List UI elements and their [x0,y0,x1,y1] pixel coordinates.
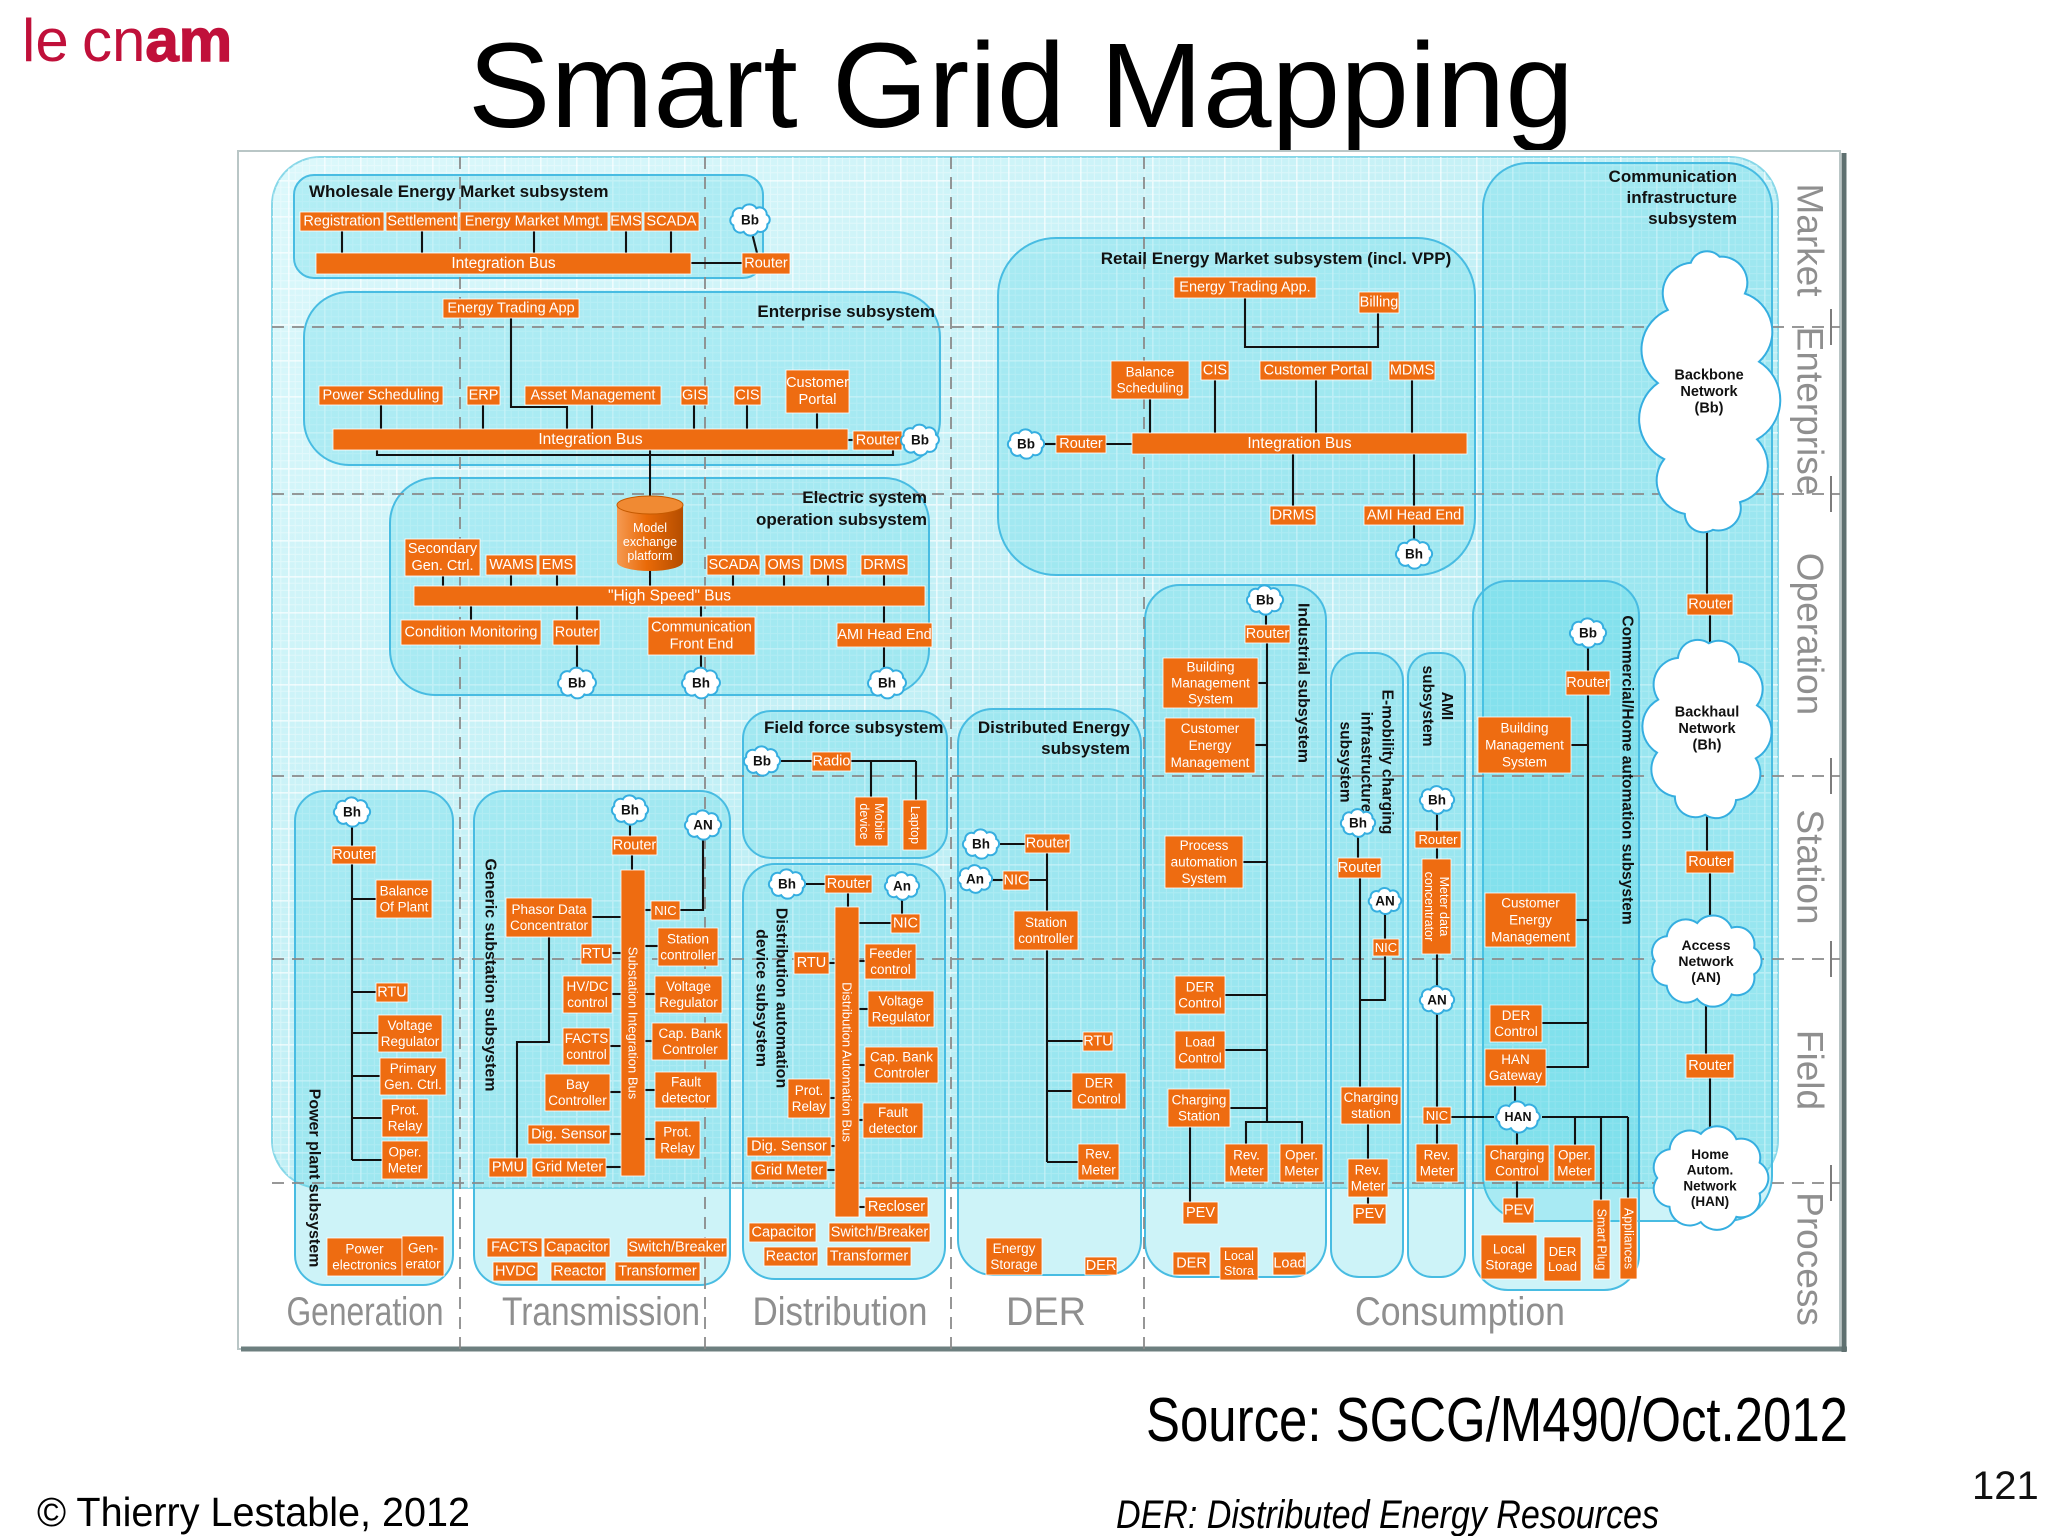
svg-text:Transformer: Transformer [618,1264,697,1280]
svg-text:Secondary: Secondary [408,541,478,557]
svg-text:controller: controller [1018,931,1074,946]
svg-text:Rev.: Rev. [1085,1147,1112,1162]
svg-text:E-mobility charging: E-mobility charging [1379,690,1396,835]
svg-text:Router: Router [1688,854,1732,870]
svg-text:Integration Bus: Integration Bus [451,255,556,272]
svg-text:Distribution: Distribution [753,1290,928,1334]
svg-text:Meter: Meter [1081,1163,1116,1178]
svg-text:Load: Load [1273,1256,1305,1272]
svg-text:Industrial subsystem: Industrial subsystem [1295,603,1312,763]
svg-text:Power plant subsystem: Power plant subsystem [306,1089,323,1268]
svg-text:An: An [893,879,911,894]
svg-text:Energy Trading App.: Energy Trading App. [1179,280,1310,296]
svg-text:Voltage: Voltage [878,994,923,1009]
svg-text:Distribution automation: Distribution automation [773,908,790,1088]
svg-text:DRMS: DRMS [1272,508,1315,524]
svg-text:Source: SGCG/M490/Oct.2012: Source: SGCG/M490/Oct.2012 [1146,1386,1848,1455]
svg-text:121: 121 [1972,1464,2039,1508]
svg-text:EMS: EMS [610,214,641,230]
svg-text:exchange: exchange [623,535,677,549]
svg-text:HAN: HAN [1504,1110,1531,1124]
svg-text:Meter: Meter [1351,1179,1386,1194]
svg-text:Switch/Breaker: Switch/Breaker [628,1240,726,1256]
svg-text:Rev.: Rev. [1355,1163,1382,1178]
svg-text:Station: Station [1790,809,1831,924]
svg-text:Customer: Customer [1501,896,1560,911]
svg-text:operation subsystem: operation subsystem [756,510,927,529]
svg-text:© Thierry Lestable, 2012: © Thierry Lestable, 2012 [37,1489,470,1535]
svg-text:Portal: Portal [799,392,837,408]
svg-text:Building: Building [1500,721,1548,736]
svg-text:Control: Control [1178,1051,1222,1066]
svg-text:Meter: Meter [1229,1164,1264,1179]
svg-text:HV/DC: HV/DC [566,979,608,994]
svg-text:Relay: Relay [660,1141,695,1156]
svg-text:Fault: Fault [878,1105,908,1120]
svg-text:AMI Head End: AMI Head End [837,627,931,643]
svg-text:(AN): (AN) [1691,969,1721,985]
svg-text:Capacitor: Capacitor [546,1240,608,1256]
svg-text:DER: DER [1085,1076,1114,1091]
svg-text:Bb: Bb [741,213,759,228]
svg-text:Recloser: Recloser [868,1199,925,1215]
svg-text:Router: Router [332,847,376,863]
svg-text:le cnam: le cnam [22,7,232,74]
svg-text:Generation: Generation [287,1290,444,1334]
svg-text:Meter: Meter [1420,1164,1455,1179]
svg-text:Energy Trading App: Energy Trading App [447,301,574,317]
svg-text:Router: Router [1566,675,1610,691]
svg-text:CIS: CIS [1203,363,1227,379]
svg-text:MDMS: MDMS [1390,363,1434,379]
svg-text:Network: Network [1678,953,1733,969]
svg-text:Charging: Charging [1344,1090,1399,1105]
svg-text:FACTS: FACTS [565,1031,609,1046]
svg-text:Primary: Primary [390,1061,437,1076]
svg-text:Network: Network [1680,384,1738,400]
svg-text:Power: Power [345,1242,384,1257]
svg-text:Scheduling: Scheduling [1117,381,1184,396]
svg-text:Home: Home [1691,1147,1729,1162]
svg-text:concentrator: concentrator [1422,872,1436,941]
svg-text:Distribution Automation Bus: Distribution Automation Bus [840,982,855,1142]
svg-text:Capacitor: Capacitor [751,1225,813,1241]
svg-text:Controller: Controller [548,1093,607,1108]
svg-text:subsystem: subsystem [1648,209,1737,228]
svg-text:subsystem: subsystem [1419,666,1436,747]
svg-text:Bb: Bb [753,754,771,769]
svg-text:Load: Load [1185,1035,1215,1050]
svg-text:Balance: Balance [380,884,429,899]
svg-text:RTU: RTU [797,955,827,971]
svg-text:ERP: ERP [469,388,499,404]
svg-text:Model: Model [633,521,667,535]
svg-text:Market: Market [1790,183,1831,297]
svg-text:control: control [566,1047,607,1062]
svg-text:Router: Router [555,625,599,641]
svg-text:Router: Router [744,256,788,272]
svg-text:Bb: Bb [1017,437,1035,452]
svg-text:DER: DER [1502,1008,1531,1023]
svg-text:Distributed Energy: Distributed Energy [978,718,1131,737]
svg-text:Dig. Sensor: Dig. Sensor [531,1127,607,1143]
svg-text:OMS: OMS [767,557,800,573]
svg-text:Voltage: Voltage [666,979,711,994]
svg-text:Process: Process [1180,838,1229,853]
svg-text:controller: controller [660,948,716,963]
svg-text:DER: DER [1176,1256,1207,1272]
svg-text:device subsystem: device subsystem [753,929,770,1067]
svg-text:Dig. Sensor: Dig. Sensor [751,1139,827,1155]
svg-text:Process: Process [1790,1192,1831,1326]
svg-text:Oper.: Oper. [1558,1148,1591,1163]
svg-text:NIC: NIC [1004,873,1029,889]
svg-text:Backhaul: Backhaul [1675,704,1739,720]
svg-text:Wholesale Energy Market subsys: Wholesale Energy Market subsystem [309,182,609,201]
svg-text:Power Scheduling: Power Scheduling [323,388,440,404]
svg-text:AN: AN [1427,993,1447,1008]
svg-text:Phasor Data: Phasor Data [511,902,587,917]
svg-text:Router: Router [1418,832,1458,847]
svg-text:An: An [966,872,984,887]
svg-text:Settlement: Settlement [387,214,456,230]
svg-text:Bb: Bb [1579,626,1597,641]
svg-text:RTU: RTU [582,946,612,962]
svg-text:System: System [1502,755,1547,770]
svg-text:subsystem: subsystem [1337,722,1354,803]
svg-text:Bh: Bh [621,803,639,818]
svg-text:Bh: Bh [972,837,990,852]
svg-text:Bh: Bh [878,676,896,691]
svg-text:NIC: NIC [654,903,676,918]
svg-text:Customer: Customer [1181,721,1240,736]
svg-text:Prot.: Prot. [391,1103,420,1118]
svg-text:Energy: Energy [1189,738,1232,753]
svg-text:Retail Energy Market subsystem: Retail Energy Market subsystem (incl. VP… [1101,249,1452,268]
svg-text:FACTS: FACTS [491,1240,538,1256]
svg-text:NIC: NIC [1426,1108,1448,1123]
svg-text:Regulator: Regulator [381,1034,440,1049]
svg-text:infrastructure: infrastructure [1358,712,1375,813]
svg-text:Control: Control [1178,996,1222,1011]
svg-text:Gen. Ctrl.: Gen. Ctrl. [384,1077,442,1092]
svg-text:Enterprise: Enterprise [1790,327,1831,496]
svg-text:Meter: Meter [1284,1164,1319,1179]
svg-text:Router: Router [856,433,900,449]
svg-text:Router: Router [827,876,871,892]
svg-text:Oper.: Oper. [388,1145,421,1160]
svg-text:EMS: EMS [542,557,573,573]
svg-text:Bh: Bh [778,877,796,892]
svg-text:Voltage: Voltage [387,1018,432,1033]
svg-text:DER: Distributed Energy Resour: DER: Distributed Energy Resources [1116,1493,1659,1536]
svg-text:Commercial/Home automation sub: Commercial/Home automation subsystem [1619,615,1636,924]
svg-text:Transmission: Transmission [502,1290,700,1334]
svg-text:DRMS: DRMS [863,557,906,573]
svg-text:Registration: Registration [303,214,380,230]
svg-text:Smart Grid Mapping: Smart Grid Mapping [468,17,1574,153]
svg-text:Local: Local [1493,1242,1525,1257]
svg-text:detector: detector [869,1121,918,1136]
svg-text:Feeder: Feeder [869,946,912,961]
svg-text:Energy: Energy [1509,913,1552,928]
svg-text:Network: Network [1678,721,1736,737]
svg-text:automation: automation [1171,855,1238,870]
svg-text:detector: detector [662,1091,711,1106]
svg-text:Appliances: Appliances [1622,1208,1636,1269]
svg-text:Mobile: Mobile [872,803,886,840]
svg-text:Asset Management: Asset Management [531,388,656,404]
svg-text:Control: Control [1077,1092,1121,1107]
svg-text:electronics: electronics [332,1258,397,1273]
svg-text:Grid Meter: Grid Meter [535,1160,604,1176]
svg-text:Building: Building [1186,660,1234,675]
svg-text:Consumption: Consumption [1355,1290,1565,1334]
svg-text:Station: Station [1025,915,1067,930]
svg-text:Router: Router [613,838,657,854]
svg-text:Control: Control [1495,1164,1539,1179]
svg-text:Control: Control [1494,1024,1538,1039]
svg-text:Gen. Ctrl.: Gen. Ctrl. [411,558,473,574]
svg-text:Bh: Bh [1349,816,1367,831]
svg-text:Meter: Meter [1557,1164,1592,1179]
svg-text:Energy Market Mmgt.: Energy Market Mmgt. [465,214,604,230]
svg-text:Transformer: Transformer [830,1249,909,1265]
svg-text:subsystem: subsystem [1041,739,1130,758]
svg-text:Controler: Controler [874,1066,930,1081]
svg-text:System: System [1188,692,1233,707]
svg-text:Billing: Billing [1360,295,1399,311]
svg-text:Bh: Bh [692,676,710,691]
svg-text:Energy: Energy [993,1241,1036,1256]
svg-text:Storage: Storage [990,1257,1037,1272]
svg-text:Laptop: Laptop [908,806,922,844]
svg-text:Cap. Bank: Cap. Bank [658,1026,721,1041]
svg-text:Station: Station [1178,1109,1220,1124]
svg-text:control: control [567,995,608,1010]
svg-text:HAN: HAN [1501,1052,1530,1067]
svg-text:RTU: RTU [377,985,407,1001]
svg-text:Bh: Bh [1405,547,1423,562]
svg-text:Rev.: Rev. [1233,1148,1260,1163]
svg-text:NIC: NIC [1375,940,1397,955]
svg-text:Local: Local [1224,1249,1254,1263]
svg-text:System: System [1181,871,1226,886]
svg-text:Charging: Charging [1490,1148,1545,1163]
svg-text:PMU: PMU [492,1160,524,1176]
svg-text:SCADA: SCADA [709,557,759,573]
svg-text:Cap. Bank: Cap. Bank [870,1050,933,1065]
svg-text:Management: Management [1491,930,1570,945]
svg-text:Communication: Communication [1609,167,1737,186]
svg-text:AN: AN [693,818,713,833]
svg-text:Management: Management [1485,738,1564,753]
svg-text:Meter: Meter [388,1161,423,1176]
svg-text:(Bh): (Bh) [1693,738,1722,754]
svg-text:PEV: PEV [1186,1205,1215,1221]
svg-text:PEV: PEV [1504,1203,1533,1219]
svg-text:Router: Router [1026,836,1070,852]
svg-text:PEV: PEV [1355,1206,1384,1222]
svg-text:Switch/Breaker: Switch/Breaker [831,1225,929,1241]
svg-text:station: station [1351,1106,1391,1121]
svg-text:DER: DER [1549,1244,1576,1259]
svg-text:device: device [857,803,871,839]
svg-text:CIS: CIS [735,388,759,404]
svg-text:Storage: Storage [1485,1258,1532,1273]
svg-text:Integration Bus: Integration Bus [538,431,643,448]
svg-text:Router: Router [1688,1058,1732,1074]
svg-text:Router: Router [1059,436,1103,452]
svg-text:Meter data: Meter data [1437,877,1451,937]
svg-text:Router: Router [1688,597,1732,613]
svg-text:Bb: Bb [1256,593,1274,608]
svg-text:Oper.: Oper. [1285,1148,1318,1163]
svg-text:Router: Router [1338,860,1382,876]
svg-text:(Bb): (Bb) [1695,401,1724,417]
svg-text:AMI: AMI [1438,692,1455,720]
svg-text:SCADA: SCADA [647,214,697,230]
svg-text:Relay: Relay [388,1119,423,1134]
svg-text:control: control [870,962,911,977]
svg-text:Balance: Balance [1126,365,1175,380]
svg-text:WAMS: WAMS [489,557,534,573]
svg-text:"High Speed" Bus: "High Speed" Bus [608,588,731,605]
svg-text:Generic substation subsystem: Generic substation subsystem [482,859,499,1092]
svg-text:Bb: Bb [911,433,929,448]
svg-text:Prot.: Prot. [663,1125,692,1140]
svg-text:Concentrator: Concentrator [510,918,589,933]
svg-text:RTU: RTU [1083,1034,1113,1050]
svg-text:Condition Monitoring: Condition Monitoring [405,625,538,641]
svg-text:DER: DER [1086,1258,1117,1274]
svg-text:erator: erator [405,1257,441,1272]
svg-text:Integration Bus: Integration Bus [1247,435,1352,452]
svg-text:Autom.: Autom. [1687,1163,1734,1178]
svg-text:Management: Management [1171,755,1250,770]
svg-text:infrastructure: infrastructure [1626,188,1737,207]
svg-text:Bb: Bb [568,676,586,691]
svg-text:DER: DER [1006,1290,1086,1334]
svg-text:Radio: Radio [813,754,851,770]
svg-text:Load: Load [1548,1259,1577,1274]
svg-text:Bh: Bh [1428,793,1446,808]
svg-text:Controler: Controler [662,1042,718,1057]
svg-text:AMI Head End: AMI Head End [1367,508,1461,524]
svg-text:Customer: Customer [786,375,849,391]
svg-text:Field: Field [1790,1030,1831,1110]
svg-text:Gateway: Gateway [1489,1068,1543,1083]
svg-text:Gen-: Gen- [408,1241,438,1256]
svg-text:Electric system: Electric system [802,488,927,507]
svg-text:Prot.: Prot. [795,1083,824,1098]
svg-text:Stora: Stora [1224,1264,1254,1278]
svg-text:DER: DER [1186,980,1215,995]
svg-text:Network: Network [1683,1178,1737,1193]
svg-text:Substation Integration Bus: Substation Integration Bus [626,947,641,1100]
svg-text:Rev.: Rev. [1424,1148,1451,1163]
svg-text:Backbone: Backbone [1674,367,1743,383]
svg-text:NIC: NIC [893,916,918,932]
svg-text:Front End: Front End [670,637,734,653]
svg-text:Reactor: Reactor [766,1249,817,1265]
svg-text:GIS: GIS [682,388,707,404]
svg-text:(HAN): (HAN) [1691,1194,1729,1209]
svg-text:Router: Router [1246,626,1290,642]
svg-text:Access: Access [1681,937,1730,953]
svg-text:Regulator: Regulator [659,995,718,1010]
svg-text:AN: AN [1375,894,1395,909]
svg-text:Enterprise subsystem: Enterprise subsystem [757,302,935,321]
svg-text:Communication: Communication [651,619,752,635]
svg-text:Customer Portal: Customer Portal [1264,363,1369,379]
svg-text:Grid Meter: Grid Meter [755,1163,824,1179]
svg-text:Operation: Operation [1790,553,1831,716]
svg-text:Smart Plug: Smart Plug [1595,1209,1609,1271]
svg-text:Station: Station [667,932,709,947]
svg-text:Management: Management [1171,676,1250,691]
svg-text:Of Plant: Of Plant [380,900,429,915]
svg-text:Field force subsystem: Field force subsystem [764,718,944,737]
svg-text:Bh: Bh [343,805,361,820]
svg-text:platform: platform [627,549,672,563]
svg-text:Charging: Charging [1172,1093,1227,1108]
svg-text:DMS: DMS [812,557,844,573]
svg-text:HVDC: HVDC [495,1264,536,1280]
svg-text:Relay: Relay [792,1099,827,1114]
svg-text:Bay: Bay [566,1077,590,1092]
svg-text:Regulator: Regulator [872,1010,931,1025]
svg-text:Reactor: Reactor [553,1264,604,1280]
svg-text:Fault: Fault [671,1075,701,1090]
